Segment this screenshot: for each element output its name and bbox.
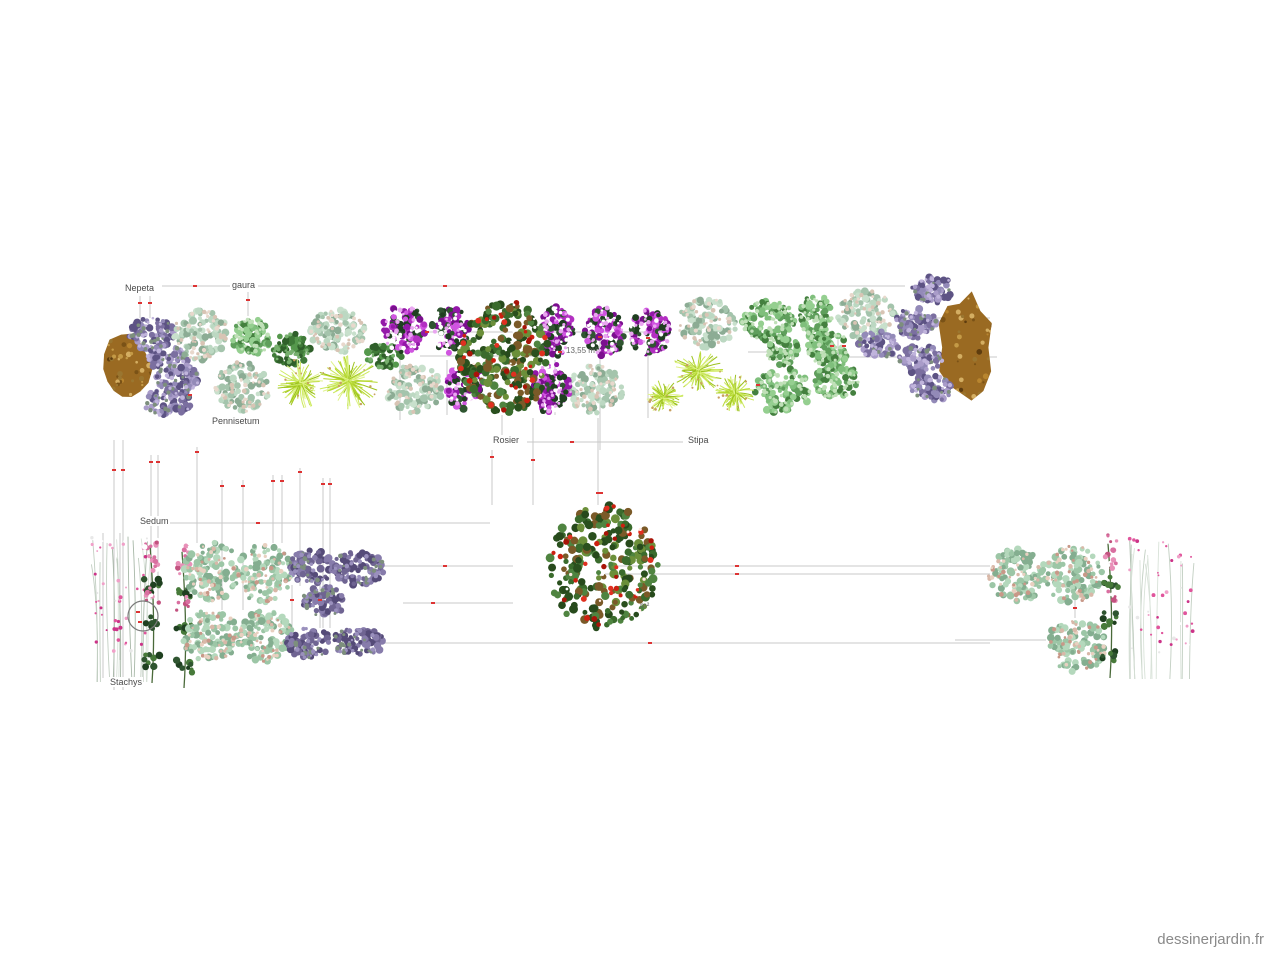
sage-plant	[173, 310, 229, 360]
nepeta-plant	[898, 345, 942, 374]
purple_low-plant	[332, 628, 384, 656]
tall_pink-plant	[1128, 535, 1194, 679]
sedum-plant	[237, 610, 293, 662]
sage-plant	[678, 298, 736, 348]
watermark: dessinerjardin.fr	[1157, 931, 1264, 948]
purple_low-plant	[332, 551, 384, 585]
rosier-plant	[459, 300, 549, 415]
grass-plant	[714, 374, 756, 412]
grass-plant	[317, 352, 381, 410]
tall_rose-plant	[1088, 532, 1132, 678]
sedum-plant	[184, 542, 240, 602]
nepeta-plant	[143, 388, 191, 416]
green_bush-plant	[755, 368, 810, 414]
green_bush-plant	[231, 318, 273, 354]
sage-plant	[386, 365, 442, 413]
green_bush-plant	[815, 363, 859, 399]
sedum-plant	[237, 544, 293, 604]
sage-plant	[568, 365, 624, 413]
purple_low-plant	[287, 628, 331, 658]
plants-layer	[0, 0, 1280, 960]
nepeta-plant	[858, 331, 900, 358]
nepeta-plant	[912, 277, 956, 303]
sedum-plant	[988, 549, 1046, 601]
green_bush-plant	[806, 331, 850, 365]
green_bush-plant	[740, 300, 795, 340]
nepeta-plant	[894, 308, 936, 338]
petunia-plant	[630, 309, 670, 356]
green_bush-plant	[767, 336, 799, 366]
garden-plan-canvas: NepetagauraPennisetumRosierStipaSedumSta…	[0, 0, 1280, 960]
tall_rose-plant	[136, 533, 168, 683]
purple_low-plant	[302, 586, 346, 616]
nepeta-plant	[911, 375, 953, 401]
sedum-plant	[182, 610, 238, 662]
rosier-plant	[548, 505, 658, 630]
petunia-plant	[383, 305, 425, 353]
sage-plant	[215, 362, 269, 412]
petunia-plant	[584, 307, 624, 356]
purple_low-plant	[289, 550, 333, 584]
sage-plant	[310, 310, 366, 352]
